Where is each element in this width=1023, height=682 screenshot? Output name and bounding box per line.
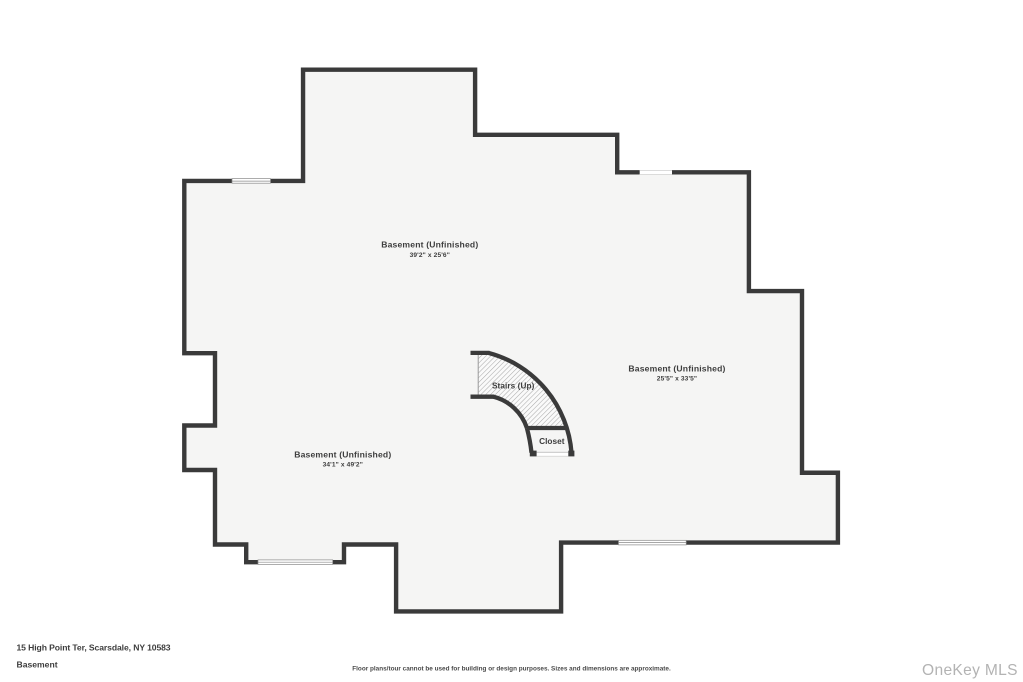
svg-text:Basement: Basement	[17, 659, 58, 669]
svg-text:Basement (Unfinished): Basement (Unfinished)	[381, 240, 478, 250]
svg-text:Floor plans/tour cannot be use: Floor plans/tour cannot be used for buil…	[352, 666, 671, 673]
svg-text:Basement (Unfinished): Basement (Unfinished)	[294, 450, 391, 460]
svg-text:25'5" x 33'5": 25'5" x 33'5"	[657, 376, 697, 383]
svg-text:39'2" x 25'6": 39'2" x 25'6"	[410, 252, 450, 259]
svg-text:Stairs (Up): Stairs (Up)	[492, 382, 535, 391]
svg-text:15 High Point Ter, Scarsdale,: 15 High Point Ter, Scarsdale, NY 10583	[17, 643, 171, 653]
svg-text:OneKey MLS: OneKey MLS	[922, 662, 1018, 679]
svg-text:34'1" x 49'2": 34'1" x 49'2"	[323, 462, 363, 469]
svg-text:Basement (Unfinished): Basement (Unfinished)	[628, 364, 725, 374]
svg-text:Closet: Closet	[539, 436, 565, 446]
